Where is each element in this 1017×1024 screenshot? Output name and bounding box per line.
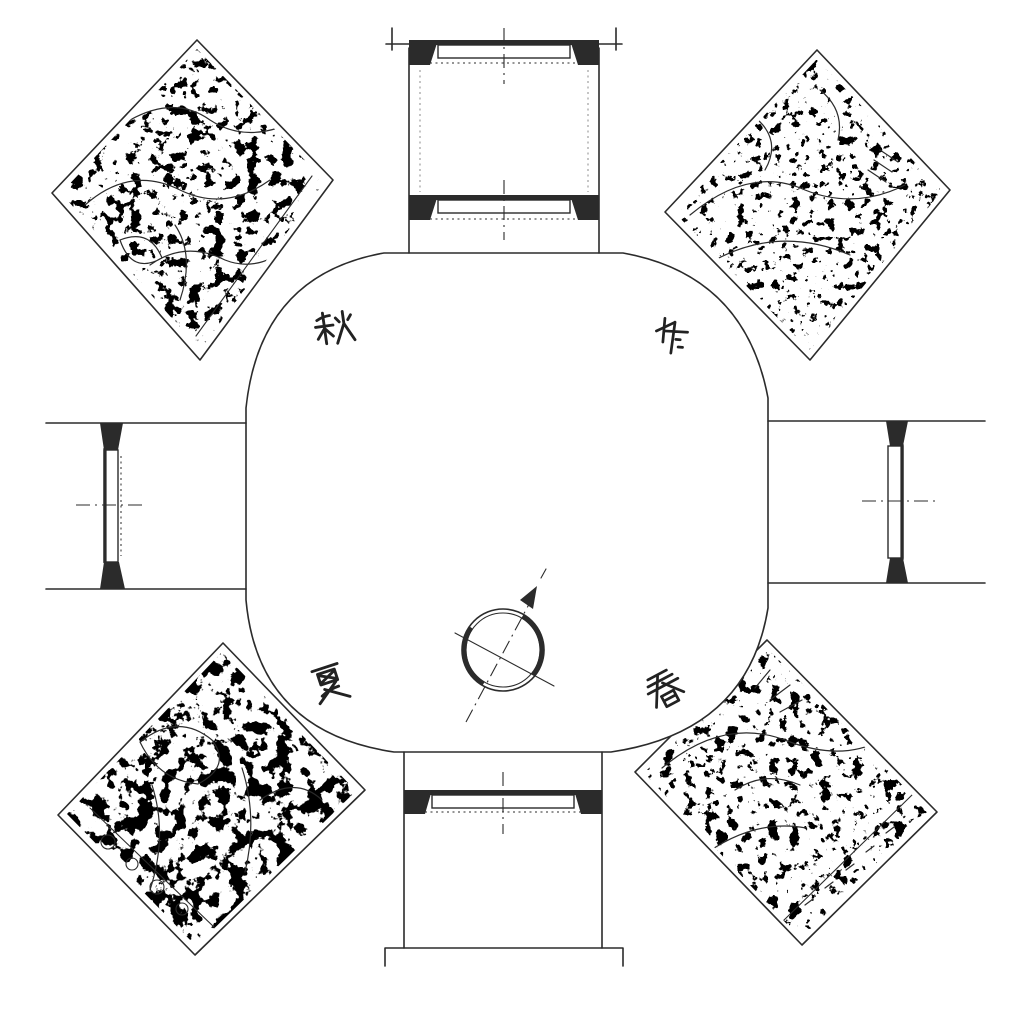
door-jamb-right	[570, 195, 599, 220]
door-jamb-left	[404, 790, 432, 814]
north-corridor	[386, 28, 622, 253]
door-frame	[862, 421, 938, 583]
inner-door-frame	[404, 772, 602, 834]
corridor-walls	[768, 421, 985, 583]
west-corridor	[46, 423, 246, 589]
door-jamb-left	[409, 195, 438, 220]
door-frame	[76, 423, 142, 589]
door-jamb-right	[570, 40, 599, 65]
door-jamb-top	[886, 421, 908, 446]
drawing-page: 秋 冬 夏 春	[0, 0, 1017, 1024]
entrance-threshold-step	[385, 948, 623, 966]
east-corridor	[768, 421, 985, 583]
corridor-walls	[46, 423, 246, 589]
door-jamb-bottom	[100, 562, 125, 589]
outer-door-frame	[409, 28, 599, 84]
door-jamb-bottom	[886, 558, 908, 583]
wall-inner-dotted-lines	[420, 70, 588, 192]
door-jamb-left	[409, 40, 438, 65]
door-jamb-top	[100, 423, 123, 450]
inner-door-frame	[409, 180, 599, 240]
pavilion-floor-plan: 秋 冬 夏 春	[0, 0, 1017, 1024]
corridor-walls	[409, 48, 599, 253]
south-corridor	[385, 752, 623, 966]
door-jamb-right	[574, 790, 602, 814]
